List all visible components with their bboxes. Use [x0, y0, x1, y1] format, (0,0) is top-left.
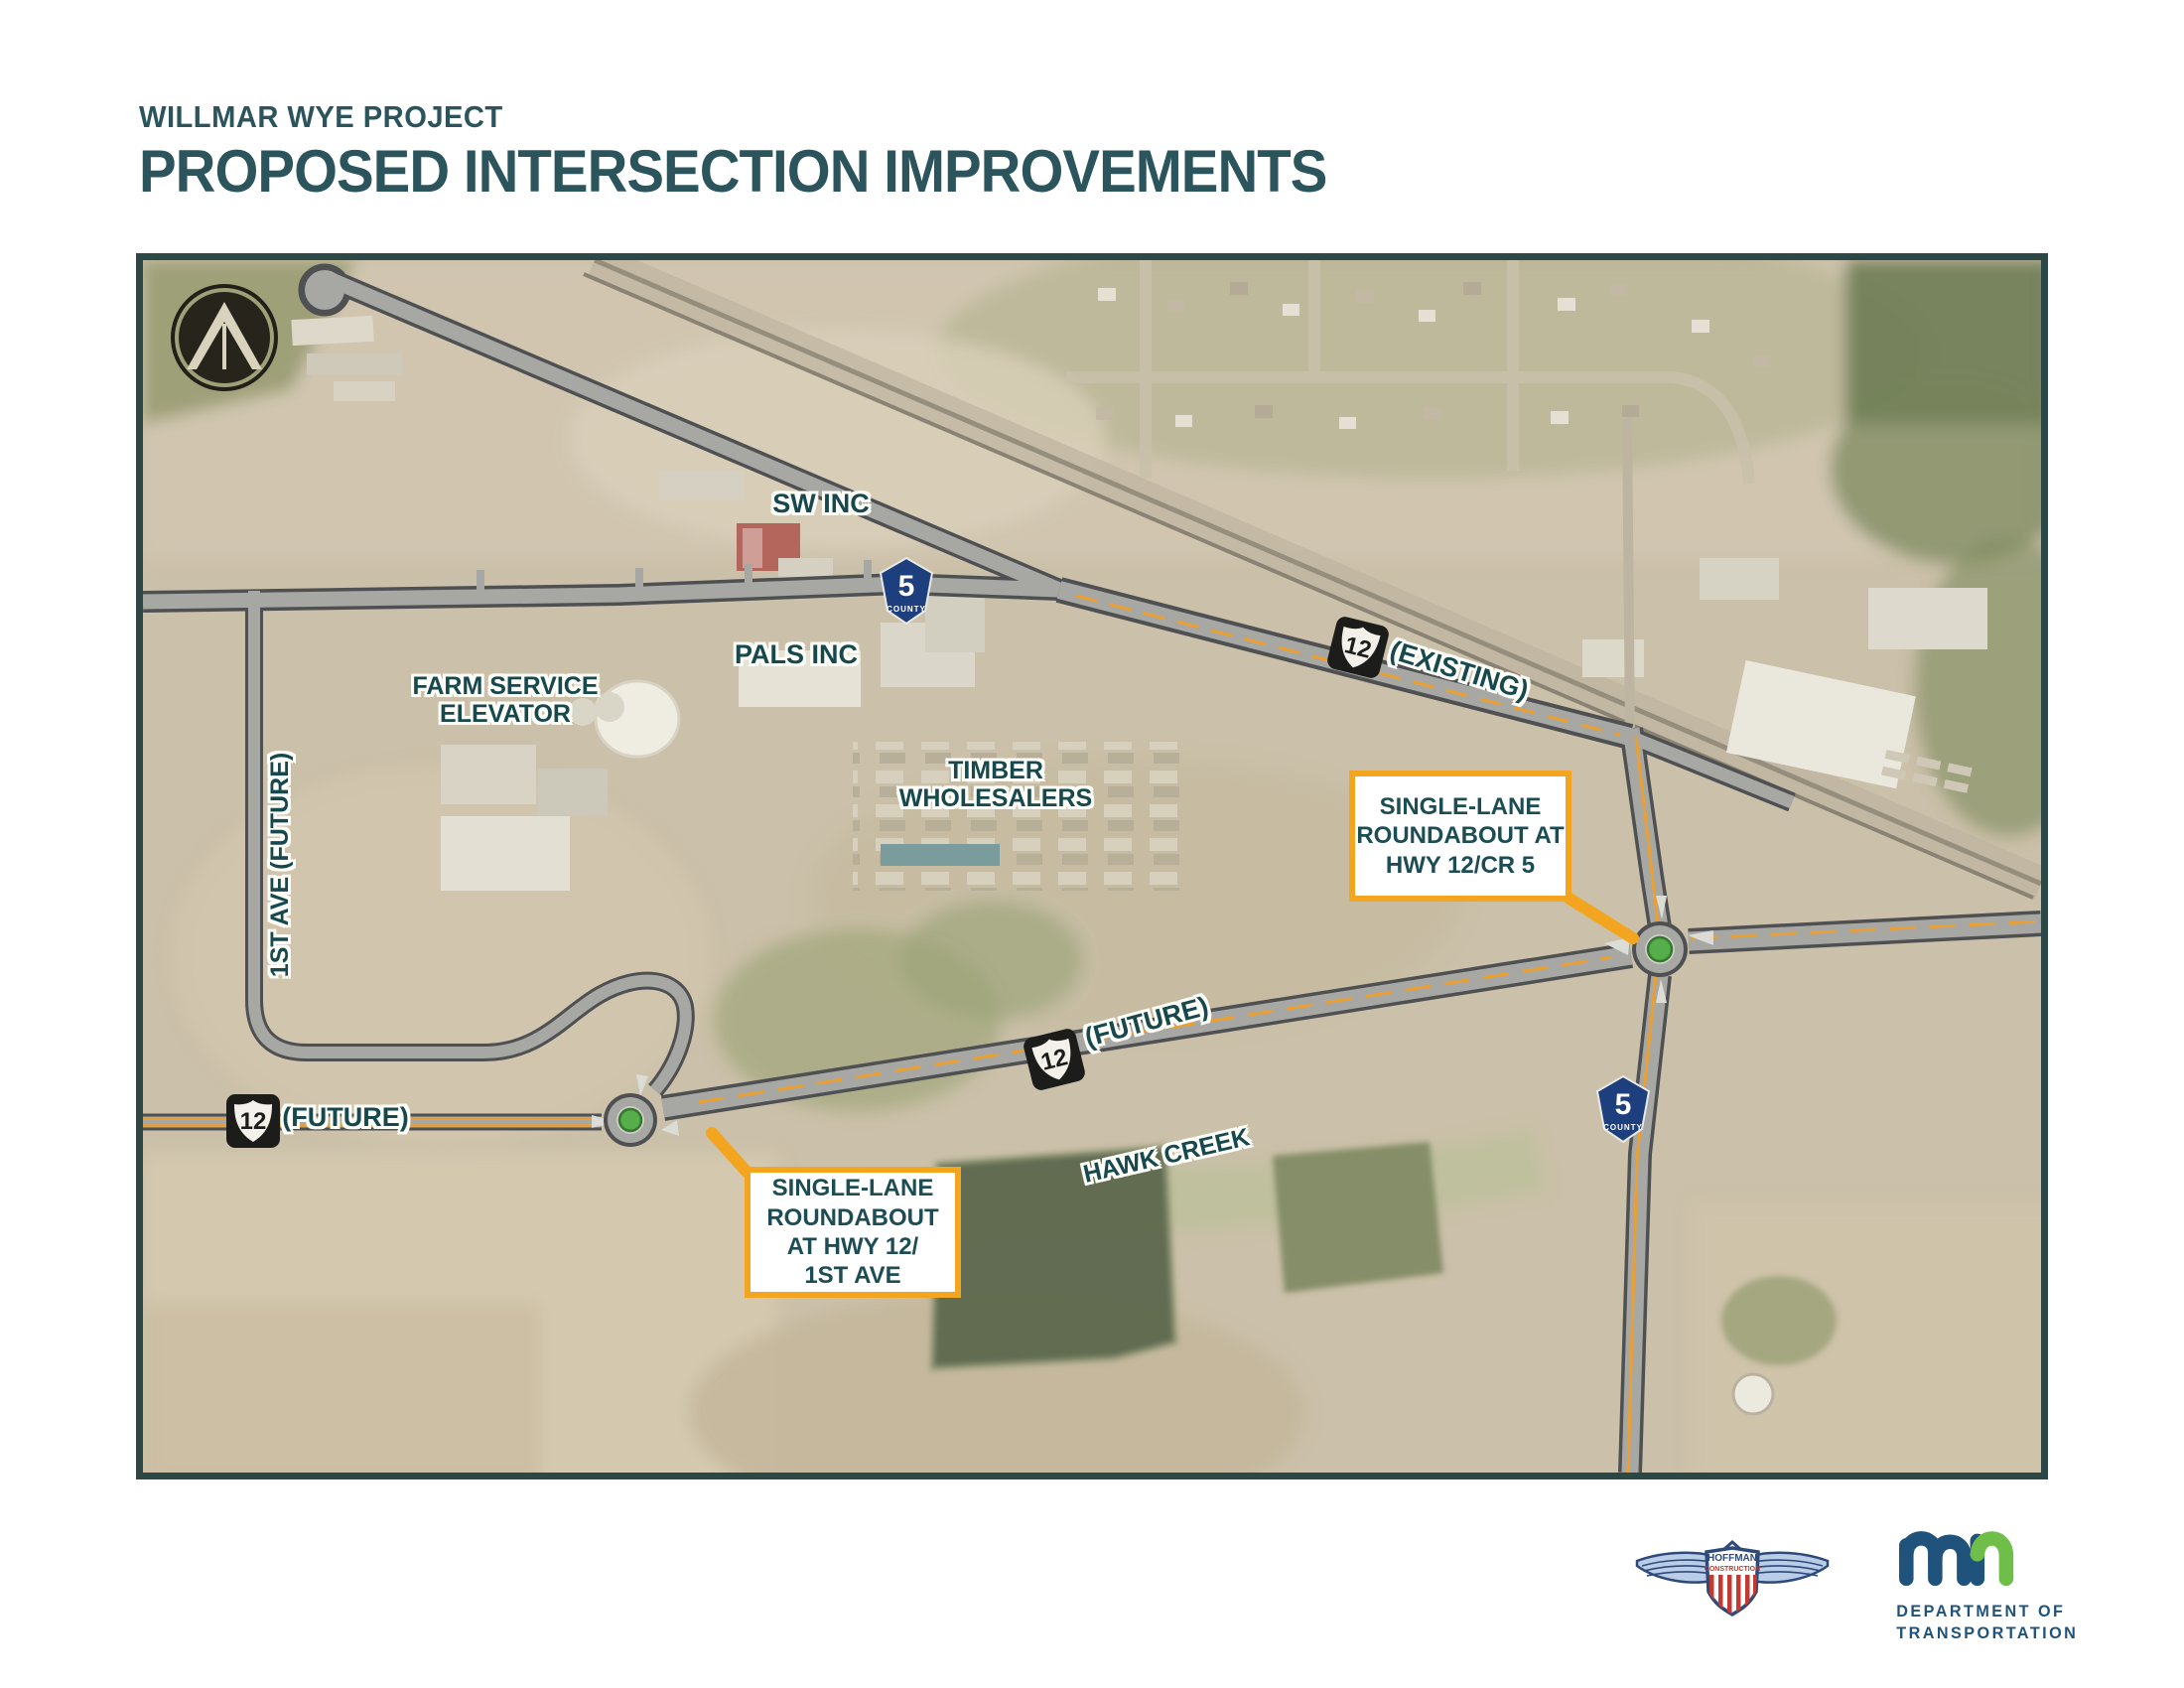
county-5-shield-north: 5 COUNTY — [877, 556, 936, 626]
footer: HOFFMAN CONSTRUCTION DEPARTMENT OF TRANS… — [0, 1479, 2184, 1688]
mn-wordmark — [1906, 1538, 2006, 1579]
label-first-ave-future: 1ST AVE (FUTURE) — [266, 746, 294, 984]
project-kicker: WILLMAR WYE PROJECT — [139, 99, 1326, 135]
hoffman-construction-logo: HOFFMAN CONSTRUCTION — [1633, 1539, 1832, 1622]
aerial-map-graphic — [143, 260, 2041, 1473]
aerial-map: SW INC PALS INC FARM SERVICE ELEVATOR TI… — [136, 253, 2048, 1479]
north-arrow-icon — [169, 282, 280, 393]
label-timber-wholesalers: TIMBER WHOLESALERS — [887, 757, 1105, 812]
callout-roundabout-cr5-text: SINGLE-LANE ROUNDABOUT AT HWY 12/CR 5 — [1356, 792, 1564, 880]
callout-roundabout-first-ave: SINGLE-LANE ROUNDABOUT AT HWY 12/ 1ST AV… — [745, 1167, 961, 1298]
us-12-shield-future-west: 12 — [225, 1093, 281, 1149]
mndot-dept-line2: TRANSPORTATION — [1896, 1624, 2078, 1642]
label-farm-service-elevator: FARM SERVICE ELEVATOR — [396, 672, 614, 728]
page: { "title": { "kicker": "WILLMAR WYE PROJ… — [0, 0, 2184, 1688]
mndot-logo: DEPARTMENT OF TRANSPORTATION — [1894, 1505, 2083, 1654]
svg-text:COUNTY: COUNTY — [887, 605, 926, 614]
label-hwy12-future-west: (FUTURE) — [261, 1102, 430, 1132]
county-5-shield-south: 5 COUNTY — [1593, 1074, 1653, 1144]
svg-text:5: 5 — [898, 570, 915, 603]
wing-left — [1637, 1553, 1712, 1583]
label-sw-inc: SW INC — [732, 489, 910, 518]
title-block: WILLMAR WYE PROJECT PROPOSED INTERSECTIO… — [139, 99, 1326, 206]
callout-roundabout-cr5: SINGLE-LANE ROUNDABOUT AT HWY 12/CR 5 — [1349, 771, 1571, 902]
hoffman-construction: CONSTRUCTION — [1705, 1566, 1760, 1573]
callout-roundabout-first-ave-text: SINGLE-LANE ROUNDABOUT AT HWY 12/ 1ST AV… — [766, 1174, 938, 1290]
svg-text:12: 12 — [240, 1108, 267, 1135]
roundabout-first-ave — [604, 1093, 657, 1147]
mndot-dept-line1: DEPARTMENT OF — [1896, 1603, 2065, 1620]
cr5-north-stub — [1627, 419, 1630, 735]
hoffman-name: HOFFMAN — [1707, 1553, 1757, 1564]
roundabout-cr5 — [1632, 921, 1688, 977]
wing-right — [1752, 1553, 1828, 1583]
label-pals-inc: PALS INC — [707, 639, 886, 669]
svg-text:COUNTY: COUNTY — [1603, 1123, 1643, 1132]
page-title: PROPOSED INTERSECTION IMPROVEMENTS — [139, 137, 1326, 206]
water-tower — [1733, 1374, 1773, 1414]
svg-text:5: 5 — [1615, 1088, 1632, 1121]
